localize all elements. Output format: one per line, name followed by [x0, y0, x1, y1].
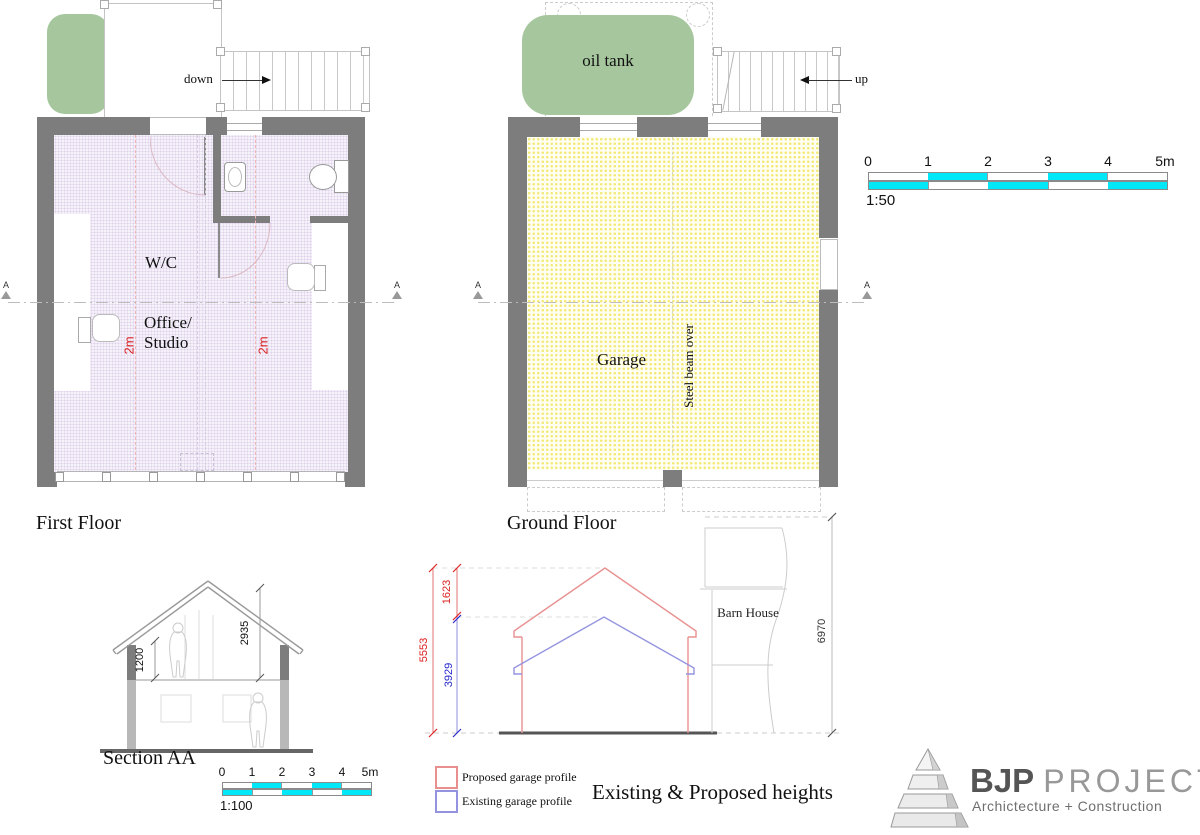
- stairs-up: [717, 51, 840, 112]
- tick-label: 4: [1098, 153, 1118, 169]
- legend-label-existing: Existing garage profile: [462, 794, 572, 809]
- heights-diagram: 5553 1623 3929 Barn House 6970: [415, 505, 860, 745]
- legend-label-proposed: Proposed garage profile: [462, 770, 577, 785]
- keyboard: [78, 317, 91, 343]
- scale-bar-1-100: 0 1 2 3 4 5m 1:100: [210, 765, 390, 815]
- barn-house-label: Barn House: [717, 605, 779, 620]
- mullion: [243, 472, 252, 482]
- attic-partition-lines: [185, 610, 213, 679]
- rooflight-outline: [180, 453, 214, 471]
- side-door-leaf: [820, 239, 838, 290]
- tick-label: 0: [214, 765, 230, 779]
- logo-wordmark: BJP PROJECTS: [970, 762, 1200, 800]
- section-aa-drawing: 1200 2935: [95, 565, 325, 775]
- logo-tagline: Archictecture + Construction: [972, 798, 1162, 814]
- mullion: [196, 472, 205, 482]
- oil-tank: oil tank: [522, 15, 694, 115]
- dim-2935: 2935: [239, 584, 264, 682]
- newel-post: [713, 104, 722, 113]
- window-top-right: [708, 117, 761, 137]
- logo-brand-bold: BJP: [970, 762, 1034, 800]
- newel-post: [832, 47, 841, 56]
- section-marker-label: A: [3, 280, 9, 290]
- wc-partition-horizontal: [310, 216, 348, 223]
- wc-label: W/C: [145, 253, 177, 273]
- ground-floor-plan: oil tank up A: [420, 0, 890, 545]
- tick-label: 1: [918, 153, 938, 169]
- headroom-label-left: 2m: [112, 330, 146, 360]
- section-marker-label: A: [475, 280, 481, 290]
- section-marker-icon: [862, 291, 872, 299]
- svg-text:5553: 5553: [418, 638, 430, 662]
- tick-label: 5m: [1150, 153, 1180, 169]
- oil-tank-shape-first-floor: [47, 14, 109, 114]
- legend-swatch-existing: [435, 790, 458, 813]
- wall-bottom-stub: [345, 469, 365, 487]
- office-label-line2: Studio: [144, 333, 188, 353]
- section-marker-icon: [473, 291, 483, 299]
- break-line-wavy: [768, 528, 787, 733]
- dim-1623: 1623: [441, 564, 461, 620]
- stairs-down-arrow-line: [222, 80, 264, 81]
- wc-door-swing-arc: [220, 222, 272, 280]
- scale-bar-row-bottom: [868, 181, 1168, 190]
- proposed-garage-profile: [514, 568, 696, 733]
- tick-label: 2: [978, 153, 998, 169]
- stairs-up-arrow-line: [808, 80, 852, 81]
- section-line: [478, 302, 866, 303]
- newel-post: [216, 47, 225, 56]
- garage-door-head-line: [682, 480, 819, 481]
- drawing-sheet: down: [0, 0, 1200, 835]
- newel-post: [361, 47, 370, 56]
- dim-5553: 5553: [418, 564, 437, 737]
- garage-door-head-line: [527, 480, 663, 481]
- logo-brand-light: PROJECTS: [1043, 763, 1200, 800]
- newel-post: [213, 0, 222, 9]
- wall-bottom-stub: [508, 469, 527, 487]
- office-chair: [287, 263, 315, 291]
- newel-post: [832, 104, 841, 113]
- mullion: [290, 472, 299, 482]
- scale-ratio: 1:100: [220, 798, 260, 813]
- svg-text:1623: 1623: [441, 580, 453, 604]
- scale-ratio: 1:50: [866, 192, 906, 209]
- section-marker-icon: [1, 291, 11, 299]
- first-floor-title: First Floor: [36, 512, 121, 535]
- newel-post: [216, 103, 225, 112]
- wall-top: [508, 117, 838, 137]
- existing-garage-profile: [514, 617, 694, 674]
- roof-lines: [113, 581, 303, 654]
- entry-door-opening: [150, 117, 206, 135]
- scale-bar-row-top: [868, 172, 1168, 181]
- newel-post: [361, 103, 370, 112]
- steel-beam-note: Steel beam over: [639, 316, 739, 416]
- person-figure-upper: [170, 623, 187, 677]
- section-line: [8, 302, 396, 303]
- section-aa-title: Section AA: [103, 747, 196, 770]
- svg-text:1200: 1200: [134, 648, 146, 672]
- mullion: [149, 472, 158, 482]
- keyboard: [314, 265, 326, 291]
- tick-label: 4: [334, 765, 350, 779]
- section-wall-upper: [280, 645, 289, 680]
- window-top: [227, 117, 262, 135]
- tick-label: 3: [1038, 153, 1058, 169]
- svg-text:3929: 3929: [443, 663, 455, 687]
- tick-label: 2: [274, 765, 290, 779]
- garage-floor-hatch: [527, 137, 819, 470]
- logo: BJP PROJECTS Archictecture + Constructio…: [888, 742, 1200, 832]
- dim-6970: 6970: [816, 513, 836, 737]
- dim-1200: 1200: [134, 637, 159, 682]
- wall-bottom-stub: [819, 469, 838, 487]
- oil-tank-label: oil tank: [522, 15, 694, 71]
- newel-post: [713, 47, 722, 56]
- mullion: [102, 472, 111, 482]
- stair-landing: [104, 3, 222, 119]
- pyramid-logo-icon: [890, 744, 970, 830]
- tick-label: 3: [304, 765, 320, 779]
- legend-swatch-proposed: [435, 766, 458, 789]
- washbasin: [224, 162, 246, 192]
- office-label-line1: Office/: [144, 313, 192, 333]
- scale-bar-row-top: [222, 782, 372, 789]
- section-marker-icon: [392, 291, 402, 299]
- tick-label: 5m: [358, 765, 382, 779]
- desk-right: [312, 220, 348, 390]
- mullion: [55, 472, 64, 482]
- svg-text:2935: 2935: [239, 621, 251, 645]
- stairs-down-label: down: [184, 71, 213, 87]
- washbasin-bowl: [228, 167, 242, 187]
- section-marker-label: A: [394, 280, 400, 290]
- section-marker-label: A: [864, 280, 870, 290]
- stairs-up-label: up: [855, 71, 868, 87]
- window-outline: [161, 695, 191, 722]
- ridge-level-dashed: [433, 568, 600, 617]
- section-wall-lower: [280, 680, 289, 749]
- first-floor-plan: down: [0, 0, 420, 545]
- tick-label: 0: [858, 153, 878, 169]
- stairs-down: [220, 51, 370, 111]
- toilet-bowl: [309, 164, 337, 190]
- newel-post: [100, 0, 109, 9]
- stairs-down-arrow-icon: [262, 76, 271, 84]
- person-figure-lower: [250, 693, 267, 747]
- headroom-label-right: 2m: [246, 330, 280, 360]
- scale-bar-1-50: 0 1 2 3 4 5m 1:50: [850, 150, 1190, 210]
- window-top-left: [580, 117, 637, 137]
- section-wall-lower: [127, 680, 136, 749]
- heights-title: Existing & Proposed heights: [592, 780, 833, 805]
- scale-bar-row-bottom: [222, 789, 372, 796]
- barn-house-outline: [700, 517, 833, 733]
- svg-text:6970: 6970: [816, 619, 828, 643]
- dim-3929: 3929: [443, 615, 461, 737]
- tick-label: 1: [244, 765, 260, 779]
- window-outline: [223, 695, 251, 722]
- mullion: [336, 472, 345, 482]
- wc-partition-vertical: [213, 135, 221, 223]
